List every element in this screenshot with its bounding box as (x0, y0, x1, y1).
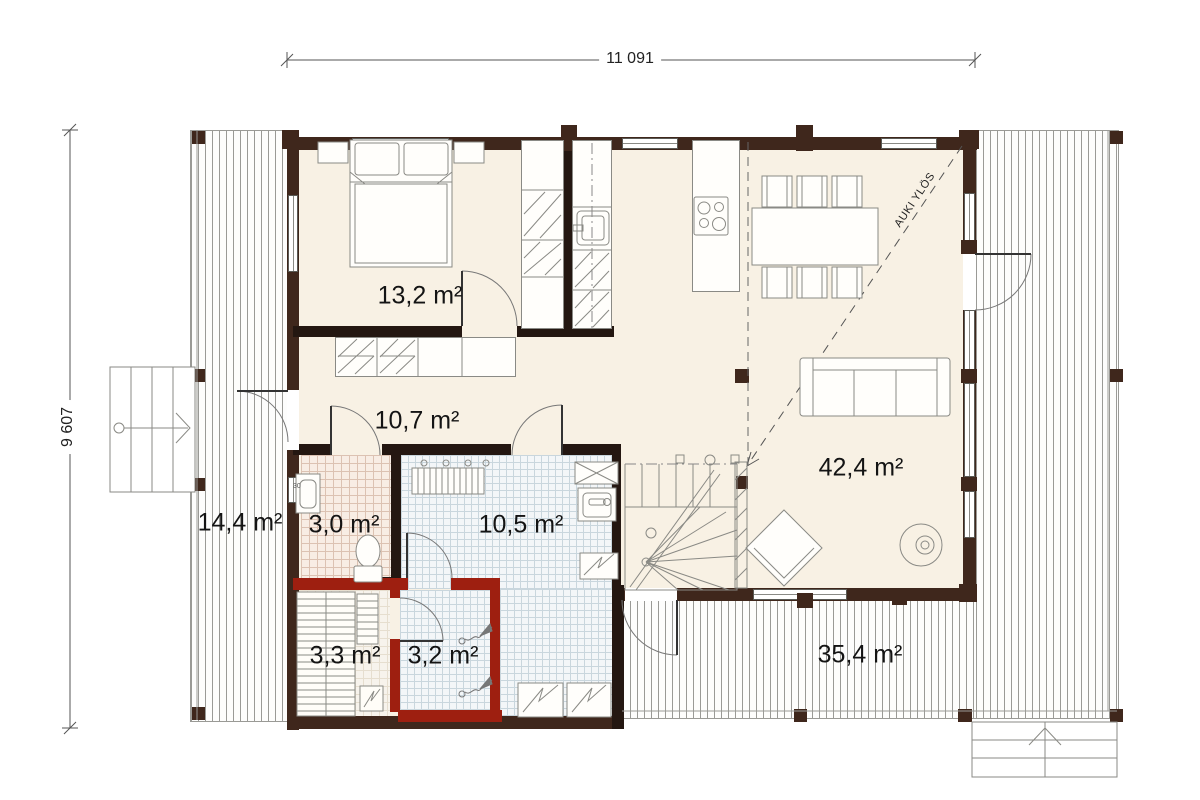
cooktop (694, 197, 728, 235)
plan-linework (0, 0, 1200, 800)
bed (318, 140, 484, 267)
vent-cabinet (575, 462, 618, 484)
armchair (746, 510, 822, 586)
washing-machine (580, 553, 618, 579)
floor-plan: 13,2 m² 10,7 m² 42,4 m² 3,0 m² 10,5 m² 3… (0, 0, 1200, 800)
bathroom-fixtures (412, 460, 618, 717)
nightstand (454, 142, 484, 163)
stove (900, 524, 942, 566)
dining-set (752, 176, 878, 298)
dining-table (752, 208, 878, 265)
entry-steps (110, 367, 195, 492)
room-label-bedroom: 13,2 m² (378, 282, 463, 311)
room-label-bathroom: 10,5 m² (479, 511, 564, 540)
hall-closet-detail (338, 337, 462, 377)
toilet (354, 535, 382, 582)
kitchen-counter-detail (572, 207, 612, 327)
sauna-upper-bench (357, 594, 378, 644)
bathroom-sink (578, 488, 616, 521)
room-label-living-room: 42,4 m² (819, 454, 904, 483)
dimension-height: 9 607 (59, 400, 77, 454)
terrace-steps (972, 722, 1117, 777)
shower-head-icon (459, 677, 492, 697)
sauna-heater (360, 686, 383, 711)
basin-size-note: 30 (293, 483, 301, 490)
towel-bench (412, 460, 489, 494)
staircase (625, 455, 747, 590)
room-label-terrace-left: 14,4 m² (198, 509, 283, 538)
nightstand (318, 142, 348, 163)
sofa (800, 358, 950, 416)
dimension-width: 11 091 (599, 50, 661, 68)
room-label-hallway: 10,7 m² (375, 407, 460, 436)
utility-cabinet (567, 683, 611, 717)
doors (237, 254, 1031, 655)
utility-cabinet (518, 683, 563, 717)
room-label-sauna: 3,3 m² (310, 642, 381, 671)
kitchen-sink (582, 216, 604, 240)
wc-basin (296, 474, 320, 513)
room-label-terrace-right: 35,4 m² (818, 641, 903, 670)
door-leaves (237, 254, 1031, 655)
door-arcs (237, 254, 1031, 655)
room-label-shower-room: 3,2 m² (408, 642, 479, 671)
room-label-wc: 3,0 m² (309, 511, 380, 540)
bedroom-wardrobe-detail (521, 190, 564, 277)
